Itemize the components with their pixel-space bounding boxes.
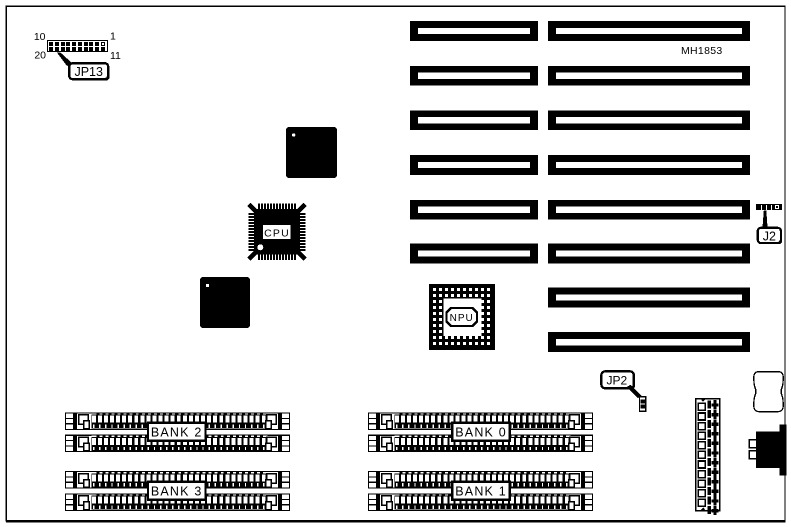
svg-text:11: 11: [110, 50, 121, 62]
svg-text:CPU: CPU: [264, 227, 290, 239]
svg-text:10: 10: [34, 31, 46, 43]
svg-text:1: 1: [110, 31, 116, 43]
svg-text:BANK 0: BANK 0: [455, 426, 507, 440]
svg-text:NPU: NPU: [450, 313, 474, 324]
svg-text:JP13: JP13: [74, 65, 103, 79]
svg-text:J2: J2: [763, 229, 776, 243]
svg-text:BANK 1: BANK 1: [455, 485, 507, 499]
svg-text:BANK 2: BANK 2: [151, 426, 203, 440]
svg-text:BANK 3: BANK 3: [151, 485, 203, 499]
svg-text:JP2: JP2: [606, 374, 627, 388]
svg-text:MH1853: MH1853: [681, 45, 723, 57]
svg-text:20: 20: [34, 50, 46, 62]
